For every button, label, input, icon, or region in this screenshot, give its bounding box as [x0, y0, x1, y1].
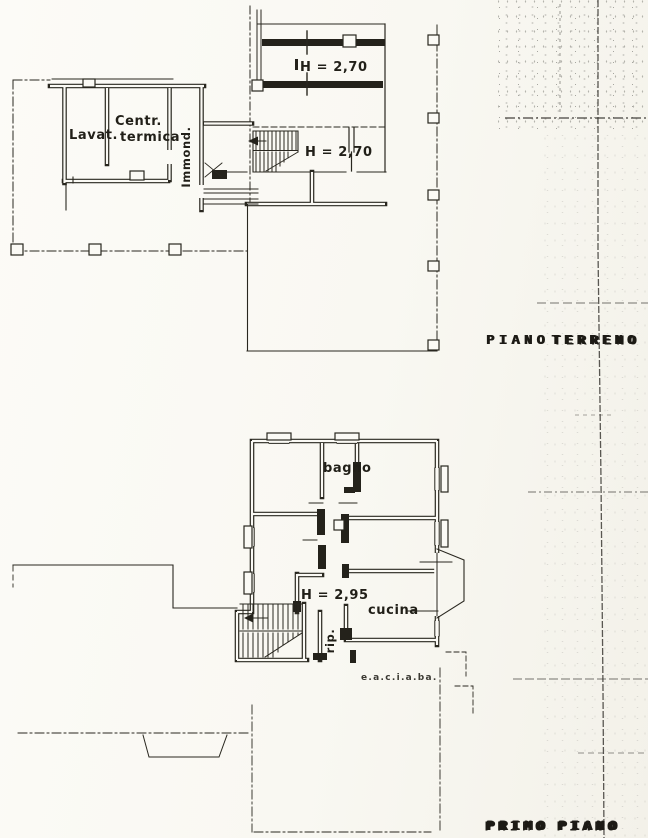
plan-title-first-word2: PIANO: [558, 820, 621, 835]
fold-line-vertical: [598, 0, 604, 838]
sill-left-1: [244, 526, 252, 548]
floor-plan-drawing: Lavat. Centr. termica Immond. H = 2,70 H…: [0, 0, 648, 838]
height-label-garage: H = 2,70: [300, 60, 368, 75]
height-label-tick: [295, 59, 298, 70]
plan-title-first-word1: PRIMO: [486, 820, 549, 835]
room-label-ripostiglio: rip.: [323, 629, 337, 654]
wall-chunk-step: [293, 601, 301, 612]
bay-window-outline: [437, 549, 464, 618]
garage-thick-wall-upper: [262, 39, 385, 46]
ground-floor-staircase: [248, 131, 298, 171]
room-label-bagno: bagno: [323, 461, 372, 476]
pillar-symbol-garage: [252, 80, 263, 91]
ground-projection-dashdot: [18, 668, 440, 832]
wall-chunk-bagno-2: [344, 487, 355, 493]
garage-thick-wall-lower: [262, 81, 383, 88]
carport-pillar-3: [169, 244, 181, 255]
overhang-pillar-4: [428, 261, 439, 271]
room-label-centrale-line2: termica: [120, 130, 180, 145]
carport-pillar-2: [89, 244, 101, 255]
room-label-lavatoio: Lavat.: [69, 128, 118, 143]
ground-floor-plan: Lavat. Centr. termica Immond. H = 2,70 H…: [11, 6, 640, 351]
stair-break-diagonal: [266, 152, 298, 171]
sill-right-1: [441, 466, 448, 492]
garage-left-double-wall: [257, 10, 261, 88]
height-label-hall: H = 2,95: [301, 588, 369, 603]
flue-symbol: [334, 520, 344, 530]
sill-right-2: [441, 520, 448, 547]
wall-chunk-hall-4: [342, 564, 349, 578]
sill-top-2: [335, 433, 359, 440]
scanned-floor-plan-page: Lavat. Centr. termica Immond. H = 2,70 H…: [0, 0, 648, 838]
overhang-pillar-5: [428, 340, 439, 350]
overhang-pillar-1: [428, 35, 439, 45]
fold-crease-lines: [505, 0, 648, 838]
balcony-brackets-right: [446, 652, 473, 714]
carport-pillar-1: [11, 244, 23, 255]
sill-top-1: [267, 433, 291, 440]
terrace-left-outline: [13, 565, 237, 608]
handwritten-note: e.a.c.i.a.ba.: [361, 673, 438, 683]
carport-boundary-dashdot: [13, 80, 247, 251]
wing-window-symbol: [83, 79, 95, 87]
height-label-stairs: H = 2,70: [305, 145, 373, 160]
room-label-centrale-line1: Centr.: [115, 114, 162, 129]
room-label-immondezzaio: Immond.: [179, 126, 193, 187]
wall-chunk-rip-1: [340, 628, 352, 640]
plan-title-ground-word1: PIANO: [486, 334, 549, 349]
sill-left-2: [244, 572, 252, 594]
wall-chunk-hall-1: [317, 509, 325, 535]
wall-chunk-rip-3: [350, 650, 356, 663]
wall-chunk-hall-3: [318, 545, 326, 569]
plan-title-ground-word2: TERRENO: [552, 334, 640, 349]
chimney-symbol: [343, 35, 356, 47]
wing-door-threshold: [130, 171, 144, 180]
room-label-cucina: cucina: [368, 603, 419, 618]
overhang-pillar-3: [428, 190, 439, 200]
first-floor-plan: bagno H = 2,95 cucina rip. e.a.c.i.a.ba.…: [13, 433, 621, 835]
overhang-pillar-2: [428, 113, 439, 123]
canopy-trapezoid: [143, 735, 227, 757]
